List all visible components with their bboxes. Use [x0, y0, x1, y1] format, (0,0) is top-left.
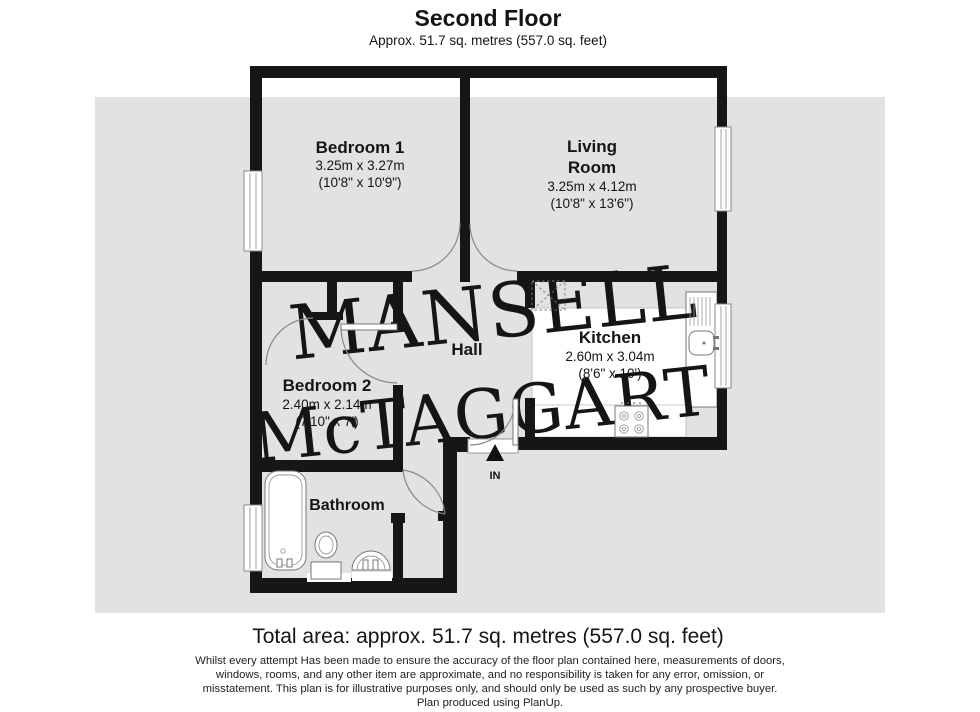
bathroom-name: Bathroom — [309, 497, 385, 514]
wall-bedroom2-stub — [327, 282, 337, 312]
kitchen-metric: 2.60m x 3.04m — [565, 349, 654, 364]
floorplan-page: MANSELL McTAGGART Second Floor Approx. 5… — [0, 0, 980, 712]
entrance-door-leaf — [513, 399, 518, 445]
wall-bedroom2-right-upper — [393, 282, 403, 322]
bathtub — [265, 471, 306, 570]
bedroom1-metric: 3.25m x 3.27m — [315, 158, 404, 173]
wall-living-bottom — [517, 271, 727, 282]
wall-bedroom1-living-divider — [460, 78, 470, 282]
wall-right-lower — [717, 386, 727, 450]
wall-kitchen-left-lower — [525, 398, 535, 437]
hall-name: Hall — [451, 340, 482, 359]
disclaimer-line-4: Plan produced using PlanUp. — [417, 697, 563, 709]
bedroom1-window — [244, 171, 262, 251]
wall-bedroom2-stub-jamb — [312, 312, 343, 320]
plan-footer: Total area: approx. 51.7 sq. metres (557… — [195, 625, 785, 709]
bedroom2-name: Bedroom 2 — [283, 376, 372, 395]
bathroom-window — [244, 505, 262, 571]
bedroom1-label: Bedroom 1 3.25m x 3.27m (10'8" x 10'9") — [315, 138, 404, 190]
living-room-window — [715, 127, 731, 211]
sink-bowl — [689, 331, 714, 355]
wall-kitchen-left-upper — [525, 282, 535, 308]
kitchen-hob — [615, 402, 648, 437]
plan-header: Second Floor Approx. 51.7 sq. metres (55… — [369, 5, 607, 48]
kitchen-window — [715, 304, 731, 388]
living-imperial: (10'8" x 13'6") — [550, 196, 633, 211]
wall-hall-bottom — [443, 437, 470, 452]
living-name-2: Room — [568, 158, 616, 177]
page-subtitle: Approx. 51.7 sq. metres (557.0 sq. feet) — [369, 33, 607, 48]
bedroom2-imperial: (7'10" x 7') — [295, 414, 358, 429]
page-title: Second Floor — [415, 5, 562, 31]
wall-right-middle — [717, 209, 727, 305]
entrance-label: IN — [490, 470, 501, 482]
total-area-text: Total area: approx. 51.7 sq. metres (557… — [252, 625, 724, 648]
disclaimer-line-1: Whilst every attempt Has been made to en… — [195, 655, 785, 667]
disclaimer-line-2: windows, rooms, and any other item are a… — [215, 669, 764, 681]
wall-right-upper — [717, 78, 727, 129]
bedroom1-name: Bedroom 1 — [316, 138, 405, 157]
floorplan-canvas: MANSELL McTAGGART Second Floor Approx. 5… — [0, 0, 980, 712]
kitchen-imperial: (8'6" x 10') — [578, 366, 641, 381]
wall-bathroom-right — [393, 523, 403, 578]
wall-kitchen-bottom — [517, 437, 727, 450]
living-name-1: Living — [567, 137, 617, 156]
kitchen-name: Kitchen — [579, 328, 641, 347]
disclaimer-line-3: misstatement. This plan is for illustrat… — [203, 683, 778, 695]
wall-bathroom-top — [250, 460, 403, 472]
wall-top — [250, 66, 727, 78]
bedroom2-metric: 2.40m x 2.14m — [282, 397, 371, 412]
wall-bedroom1-bottom — [250, 271, 412, 282]
wall-bedroom2-right-lower — [393, 385, 403, 460]
bedroom2-label: Bedroom 2 2.40m x 2.14m (7'10" x 7') — [282, 376, 371, 429]
living-metric: 3.25m x 4.12m — [547, 179, 636, 194]
bedroom1-imperial: (10'8" x 10'9") — [318, 175, 401, 190]
wall-bathroom-door-jamb — [391, 513, 405, 523]
bedroom2-door-leaf — [341, 324, 397, 330]
wall-left-upper — [250, 78, 262, 172]
